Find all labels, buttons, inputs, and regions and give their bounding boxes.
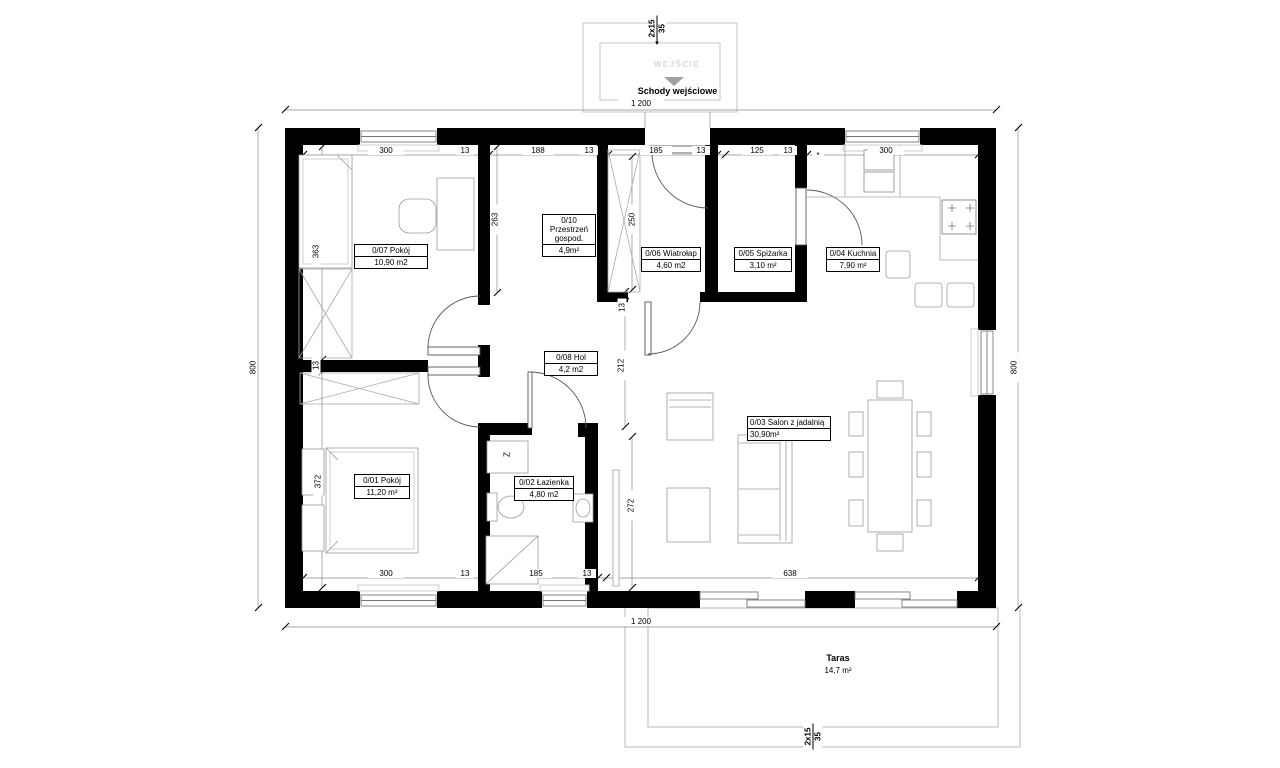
desk: [437, 178, 474, 250]
kitchen-sink: [864, 150, 894, 192]
room-name: 0/08 Hol: [545, 352, 597, 364]
cooktop: [942, 200, 976, 234]
dining-chair: [877, 381, 903, 398]
dim-overall-height-left: 800: [249, 353, 258, 383]
room-label-0-03: 0/03 Salon z jadalnią 30,90m²: [747, 416, 831, 441]
dim-bottom-13a: 13: [456, 569, 474, 578]
room-name: 0/06 Wiatrołap: [642, 248, 700, 260]
door-vestibule-hall: [645, 302, 700, 355]
washing-machine-label: Z: [503, 448, 512, 462]
entrance-direction-arrow-icon: [664, 77, 684, 86]
bed-single: [299, 155, 352, 268]
furniture-bathroom: [486, 441, 593, 584]
dim-shaft-250: 250: [628, 205, 637, 235]
wardrobe-room-07: [299, 269, 352, 358]
room-area: 4,9m²: [543, 245, 595, 256]
furniture-kitchen: [807, 145, 978, 307]
window-right-wall: [971, 329, 993, 396]
room-name: 0/01 Pokój: [355, 475, 409, 487]
tv-cabinet: [667, 393, 713, 440]
dim-top-13b: 13: [580, 146, 598, 155]
room-label-0-08: 0/08 Hol 4,2 m2: [544, 351, 598, 376]
dining-chair: [849, 412, 863, 436]
dim-overall-width-bottom: 1 200: [618, 617, 664, 626]
room-name: 0/07 Pokój: [355, 245, 427, 257]
desk-chair: [399, 199, 436, 233]
room-area: 10,90 m2: [355, 257, 427, 268]
dim-bottom-638: 638: [772, 569, 808, 578]
room-name: 0/05 Spiżarka: [735, 248, 791, 260]
room-label-0-04: 0/04 Kuchnia 7,90 m²: [826, 247, 880, 272]
room-name: 0/10 Przestrzeń gospod.: [543, 215, 595, 245]
entrance-stairs-label: Schody wejściowe: [635, 86, 720, 96]
stairs-note-steps: 2x15: [804, 724, 813, 750]
room-label-0-01: 0/01 Pokój 11,20 m²: [354, 474, 410, 499]
dim-note-asterisk: *: [812, 151, 824, 160]
sliding-panel-living: [613, 470, 619, 586]
window-bedroom-bottom: [358, 585, 439, 606]
nightstand: [302, 505, 324, 551]
room-area: 30,90m²: [748, 429, 830, 440]
room-area: 7,90 m²: [827, 260, 879, 271]
floor-plan-page: 0/07 Pokój 10,90 m2 0/10 Przestrzeń gosp…: [0, 0, 1280, 768]
dining-chair: [917, 500, 931, 526]
dim-left-363: 363: [312, 237, 321, 267]
room-area: 4,60 m2: [642, 260, 700, 271]
dim-overall-height-right: 800: [1010, 353, 1019, 383]
stairs-note-tread: 35: [657, 16, 667, 42]
bed-double: [326, 448, 418, 553]
dim-mid-263: 263: [491, 205, 500, 235]
dining-chair: [877, 534, 903, 551]
dining-chair: [917, 452, 931, 477]
dining-chair: [849, 452, 863, 477]
dim-mid-13: 13: [618, 299, 627, 317]
terrace-outline: [625, 608, 1020, 747]
stairs-note-tread: 35: [813, 724, 823, 750]
dim-top-13a: 13: [456, 146, 474, 155]
door-room-07: [428, 296, 480, 355]
stairs-note-bottom: 2x15 35: [804, 724, 823, 750]
room-name: 0/04 Kuchnia: [827, 248, 879, 260]
side-table: [667, 488, 710, 542]
terrace-area: 14,7 m²: [808, 666, 868, 675]
dim-left-13: 13: [312, 357, 321, 375]
room-area: 4,2 m2: [545, 364, 597, 375]
dim-top-185: 185: [640, 146, 672, 155]
dim-top-125: 125: [742, 146, 772, 155]
door-pantry: [796, 188, 862, 245]
door-room-01: [428, 367, 480, 427]
dim-top-300b: 300: [868, 146, 904, 155]
room-area: 4,80 m2: [515, 489, 573, 500]
dim-overall-width-top: 1 200: [618, 99, 664, 108]
entrance-label: WEJŚCIE: [647, 60, 707, 69]
terrace-door-left: [700, 592, 805, 607]
wardrobe-room-01: [300, 373, 419, 404]
dining-chair: [849, 500, 863, 526]
dim-top-13c: 13: [692, 146, 710, 155]
dim-top-13d: 13: [779, 146, 797, 155]
kitchen-chair: [915, 283, 942, 307]
floor-plan-drawing: [0, 0, 1280, 768]
room-name: 0/03 Salon z jadalnią: [748, 417, 830, 429]
room-name: 0/02 Łazienka: [515, 477, 573, 489]
dining-table: [868, 400, 912, 532]
dim-left-372: 372: [314, 467, 323, 497]
kitchen-chair: [947, 283, 974, 307]
kitchen-chair: [886, 251, 910, 278]
room-label-0-05: 0/05 Spiżarka 3,10 m²: [734, 247, 792, 272]
dim-mid-212: 212: [617, 351, 626, 381]
dim-mid-272: 272: [627, 491, 636, 521]
stairs-note-top: 2x15 35: [648, 16, 667, 42]
stairs-note-steps: 2x15: [648, 16, 657, 42]
room-label-0-06: 0/06 Wiatrołap 4,60 m2: [641, 247, 701, 272]
dim-bottom-13b: 13: [578, 569, 596, 578]
dim-bottom-185: 185: [520, 569, 552, 578]
terrace-door-right: [855, 592, 957, 607]
bathroom-sink: [573, 494, 593, 522]
furniture-room-01: [302, 448, 418, 553]
furniture-living-room: [667, 381, 931, 551]
room-label-0-02: 0/02 Łazienka 4,80 m2: [514, 476, 574, 501]
dim-bottom-300: 300: [368, 569, 404, 578]
door-bathroom: [528, 372, 586, 428]
dim-top-188: 188: [522, 146, 554, 155]
window-bathroom: [540, 585, 589, 606]
room-label-0-10: 0/10 Przestrzeń gospod. 4,9m²: [542, 214, 596, 257]
dim-top-300a: 300: [368, 146, 404, 155]
room-area: 11,20 m²: [355, 487, 409, 498]
room-label-0-07: 0/07 Pokój 10,90 m2: [354, 244, 428, 269]
sofa: [738, 435, 792, 543]
terrace-name: Taras: [813, 653, 863, 663]
room-area: 3,10 m²: [735, 260, 791, 271]
dining-chair: [917, 412, 931, 436]
